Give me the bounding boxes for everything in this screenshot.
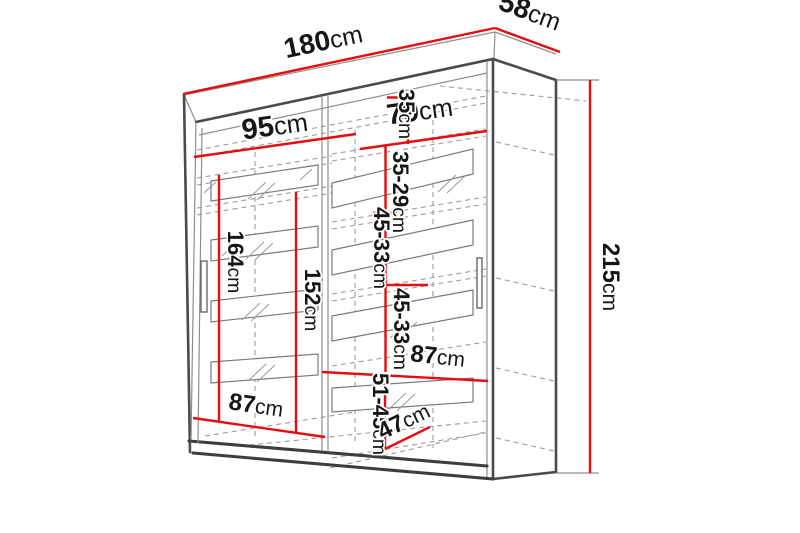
dim-unit: cm bbox=[254, 395, 285, 422]
right-door-handle bbox=[477, 258, 482, 308]
diagram-canvas: 180cm 58cm 215cm 95cm 79cm 35cm 35-29cm … bbox=[0, 0, 800, 533]
dim-gap-top: 35cm bbox=[394, 89, 419, 139]
dim-unit: cm bbox=[272, 109, 310, 141]
dim-unit: cm bbox=[300, 305, 322, 331]
dim-unit: cm bbox=[223, 267, 245, 293]
dim-unit: cm bbox=[389, 344, 411, 370]
dim-value: 164 bbox=[223, 231, 248, 268]
dim-height: 215cm bbox=[597, 243, 624, 311]
dim-value: 45-33 bbox=[369, 207, 394, 263]
dim-unit: cm bbox=[598, 283, 621, 311]
dim-value: 35-29 bbox=[388, 151, 413, 207]
dim-unit: cm bbox=[417, 94, 455, 126]
dim-gap-third: 45-33cm bbox=[369, 207, 394, 289]
dim-unit: cm bbox=[369, 263, 391, 289]
dim-value: 45-33 bbox=[389, 288, 414, 344]
wardrobe-side-face bbox=[493, 59, 556, 479]
dim-value: 215 bbox=[597, 243, 624, 283]
dim-unit: cm bbox=[436, 346, 466, 372]
wardrobe-dimension-diagram: 180cm 58cm 215cm 95cm 79cm 35cm 35-29cm … bbox=[0, 0, 800, 533]
dim-value: 87 bbox=[227, 388, 257, 418]
dim-value: 87 bbox=[409, 340, 438, 370]
dim-value: 152 bbox=[300, 269, 325, 306]
dim-interior-height-left: 164cm bbox=[223, 231, 248, 294]
dim-hanging-height: 152cm bbox=[300, 269, 325, 332]
dim-unit: cm bbox=[327, 21, 365, 54]
dim-value: 180 bbox=[281, 24, 333, 64]
dim-value: 95 bbox=[240, 110, 276, 146]
dim-unit: cm bbox=[394, 113, 416, 139]
dim-value: 35 bbox=[394, 89, 419, 113]
left-door-handle bbox=[201, 261, 207, 312]
